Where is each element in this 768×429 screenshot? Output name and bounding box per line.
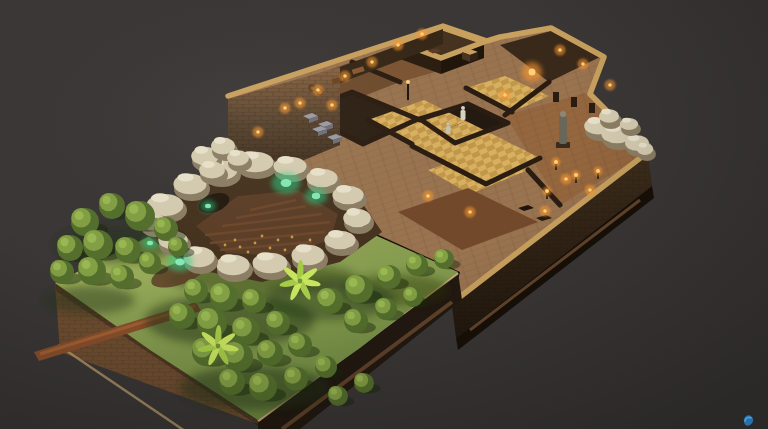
torch (295, 98, 306, 109)
torch (327, 100, 338, 111)
torch (605, 80, 616, 91)
torch (253, 127, 264, 138)
torch (578, 59, 589, 70)
torch (313, 85, 324, 96)
torch (540, 206, 551, 217)
gold-speckle (239, 246, 242, 249)
gold-speckle (247, 251, 250, 254)
torch (393, 40, 404, 51)
gold-speckle (234, 239, 237, 242)
torch (500, 90, 511, 101)
torch (423, 191, 434, 202)
gold-speckle (291, 236, 294, 239)
screenshot-stage: Isometric voxel diorama — stone dungeon … (0, 0, 768, 429)
torch (367, 57, 378, 68)
hall-pillar (589, 103, 595, 113)
crystal-glow (305, 188, 327, 205)
gold-speckle (277, 239, 280, 242)
torch (417, 29, 428, 40)
lamp-light (406, 80, 410, 84)
torch (585, 185, 596, 196)
torch (555, 45, 566, 56)
torch (340, 71, 351, 82)
gold-speckle (269, 247, 272, 250)
torch (561, 174, 572, 185)
torch (280, 103, 291, 114)
gold-speckle (284, 249, 287, 252)
scene-canvas: Isometric voxel diorama — stone dungeon … (0, 0, 768, 429)
torch (465, 207, 476, 218)
gold-speckle (254, 242, 257, 245)
crystal-glow (200, 200, 216, 212)
crystal-glow (272, 172, 301, 194)
gold-speckle (261, 235, 264, 238)
armored-statue (559, 116, 567, 144)
crystal-glow (142, 237, 158, 249)
hall-pillar (553, 92, 559, 102)
hall-pillar (571, 97, 577, 107)
forge-fire (522, 62, 542, 82)
gold-speckle (309, 239, 312, 242)
gold-speckle (224, 244, 227, 247)
